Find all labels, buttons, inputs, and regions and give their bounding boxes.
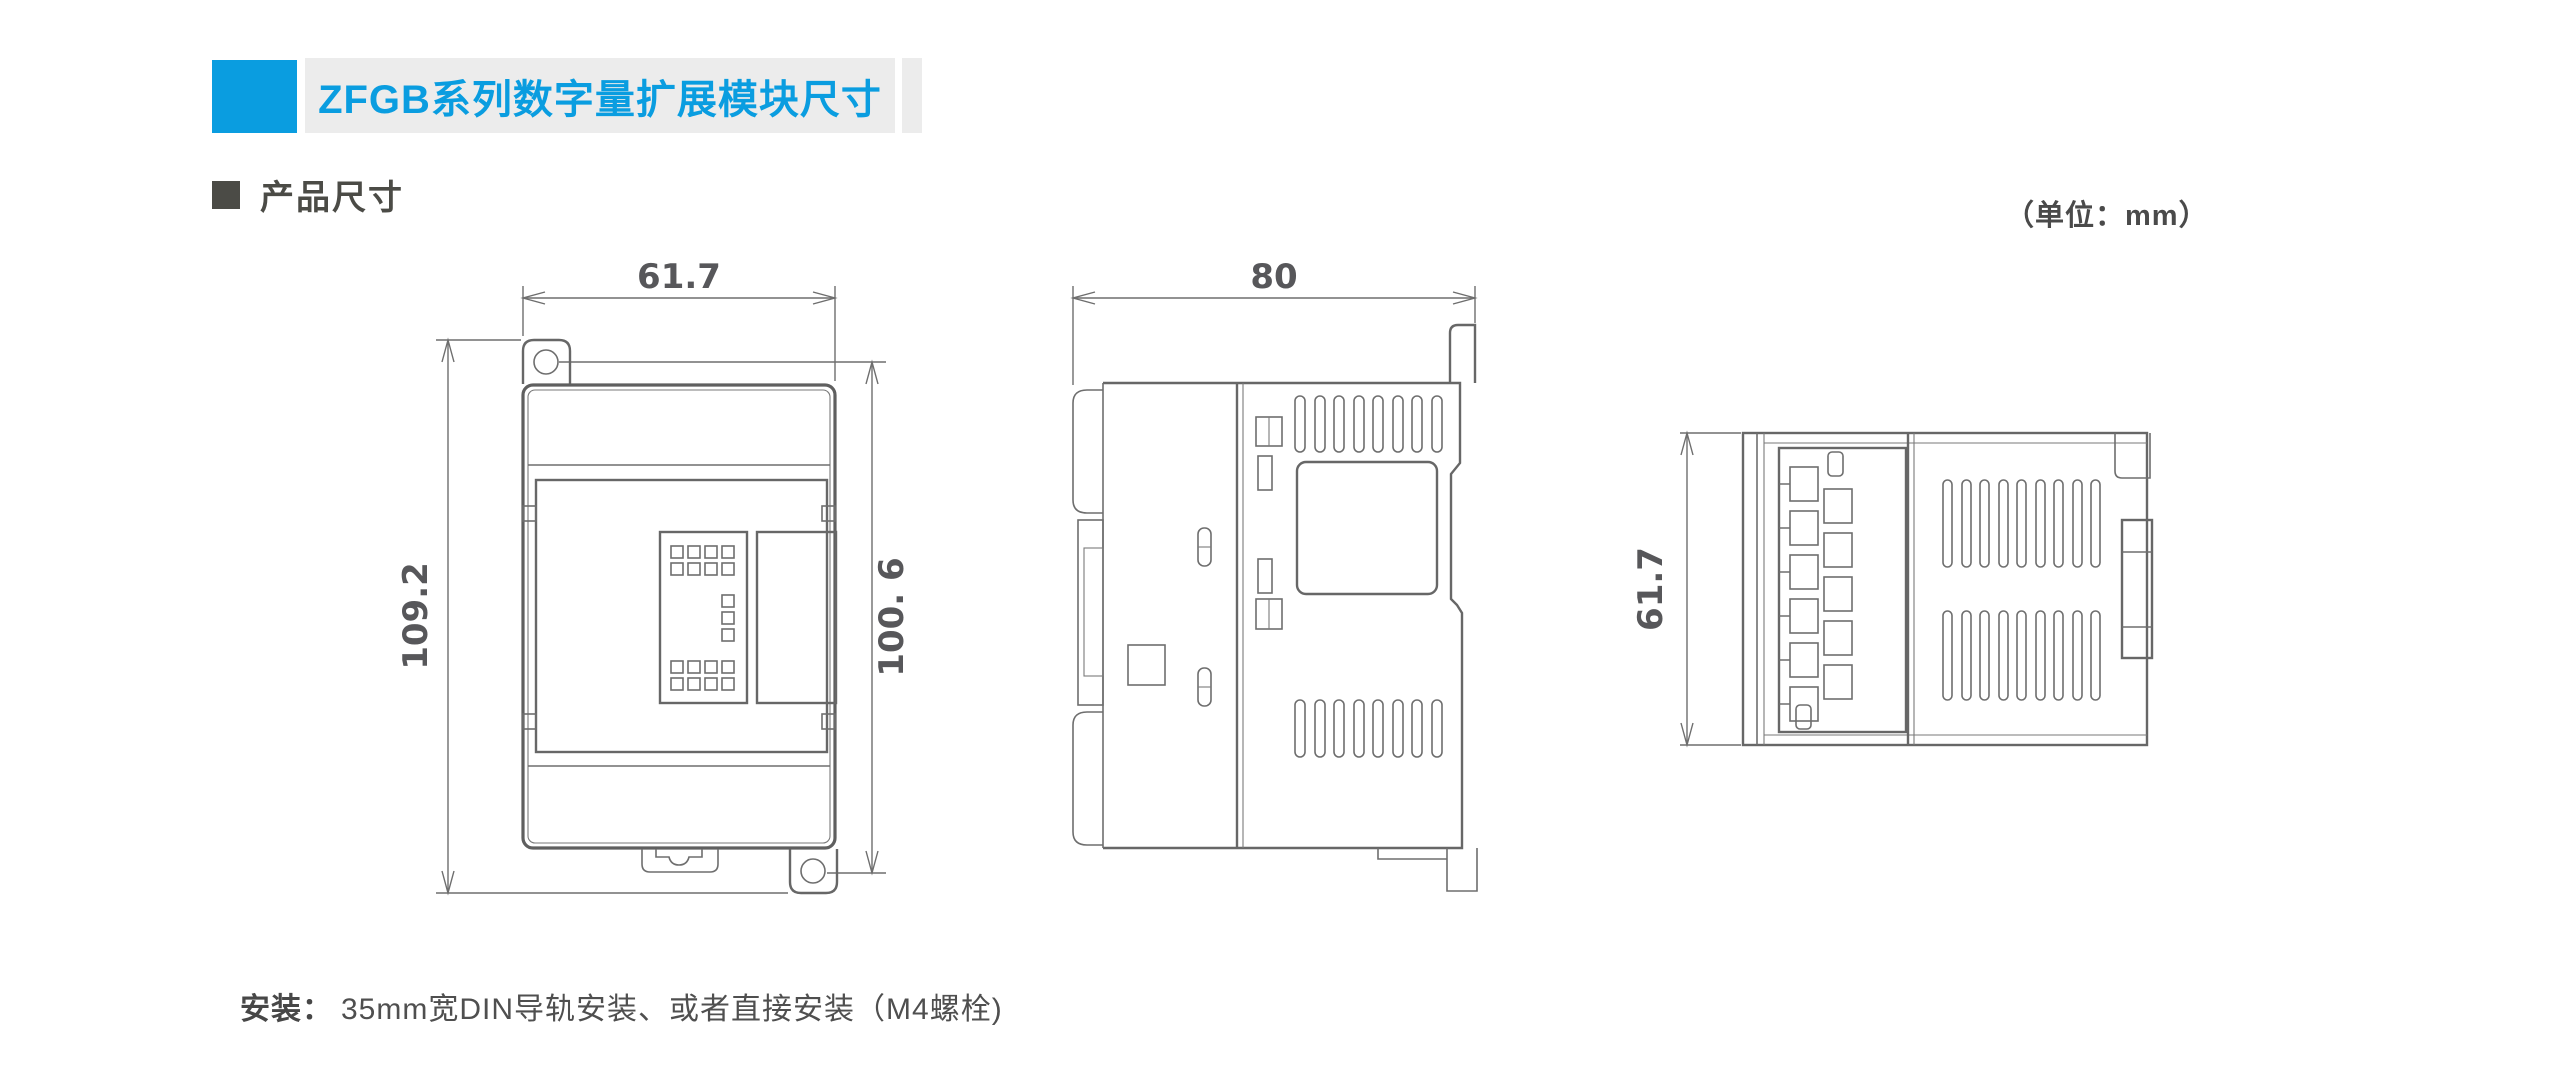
front-clip-notch: [523, 506, 536, 521]
side-vent-slots-top: [1295, 396, 1442, 452]
front-clip-notch: [822, 506, 835, 521]
front-bottom-mounting-tab: [790, 849, 837, 893]
front-center-frame: [536, 480, 827, 752]
side-clip: [1258, 456, 1272, 490]
side-terminal-inner: [1084, 548, 1103, 676]
front-width-dim-label: 61.7: [637, 257, 721, 297]
top-vent-slots-lower: [1943, 611, 2100, 700]
top-height-dim-label: 61.7: [1631, 547, 1671, 631]
side-nameplate: [1297, 462, 1437, 594]
front-clip-notch: [822, 714, 835, 729]
install-note-label: 安装：: [240, 993, 333, 1026]
side-clip: [1258, 559, 1272, 593]
front-body-outline: [523, 385, 835, 848]
side-vent-slots-bottom: [1295, 700, 1442, 757]
side-depth-ext-lines: [1073, 286, 1475, 385]
top-vent-slots-upper: [1943, 480, 2100, 567]
side-depth-dim-label: 80: [1250, 257, 1297, 297]
front-holespan-dim-label: 100. 6: [872, 557, 912, 676]
front-body-inner-line: [528, 390, 830, 843]
front-clip-notch: [523, 714, 536, 729]
front-cover-split-lines: [528, 465, 830, 766]
top-terminal-frame: [1779, 448, 1906, 732]
top-inner-lines: [1764, 433, 2147, 745]
front-height-dim-label: 109.2: [396, 562, 436, 670]
front-din-clip: [642, 849, 718, 872]
front-top-mounting-hole: [534, 350, 558, 374]
side-bottom-cover: [1073, 712, 1103, 845]
side-bottom-foot: [1378, 848, 1477, 891]
side-top-tab: [1450, 325, 1475, 383]
install-note-text: 35mm宽DIN导轨安装、或者直接安装（M4螺栓): [341, 993, 1003, 1026]
front-label-area: [757, 532, 836, 703]
top-terminal-squares-left: [1779, 467, 1818, 721]
side-top-cover: [1073, 390, 1103, 513]
side-screw-boss: [1128, 645, 1165, 685]
top-din-tab: [2115, 433, 2150, 478]
side-view: 80: [1073, 257, 1477, 891]
top-height-ext-lines: [1680, 433, 1741, 745]
install-note: 安装：35mm宽DIN导轨安装、或者直接安装（M4螺栓): [240, 984, 1003, 1028]
front-indicator-squares: [671, 546, 734, 690]
front-height-ext-lines: [436, 340, 788, 893]
top-view: 61.7: [1631, 433, 2152, 745]
dimension-drawing: 61.7 109.2 100. 6: [0, 0, 2552, 1068]
front-view: 61.7 109.2 100. 6: [396, 257, 912, 893]
front-bottom-mounting-hole: [801, 859, 825, 883]
